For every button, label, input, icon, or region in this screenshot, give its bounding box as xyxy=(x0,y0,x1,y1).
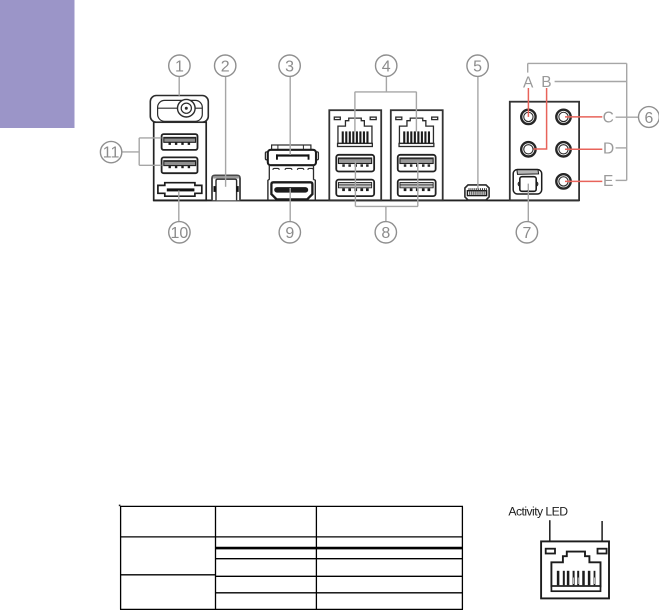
svg-text:3: 3 xyxy=(285,58,294,75)
svg-text:6: 6 xyxy=(645,110,654,127)
svg-text:7: 7 xyxy=(522,225,531,242)
svg-text:1: 1 xyxy=(175,58,184,75)
svg-text:11: 11 xyxy=(103,145,120,162)
svg-text:4: 4 xyxy=(382,58,391,75)
svg-text:9: 9 xyxy=(285,225,294,242)
svg-text:A: A xyxy=(523,74,534,91)
svg-text:8: 8 xyxy=(381,225,390,242)
svg-text:5: 5 xyxy=(473,58,482,75)
svg-text:2: 2 xyxy=(221,58,230,75)
svg-text:E: E xyxy=(603,173,613,190)
svg-text:Activity LED: Activity LED xyxy=(508,505,568,519)
svg-text:B: B xyxy=(541,74,551,91)
svg-text:C: C xyxy=(603,110,614,127)
svg-text:10: 10 xyxy=(171,225,189,242)
svg-text:D: D xyxy=(603,140,614,157)
